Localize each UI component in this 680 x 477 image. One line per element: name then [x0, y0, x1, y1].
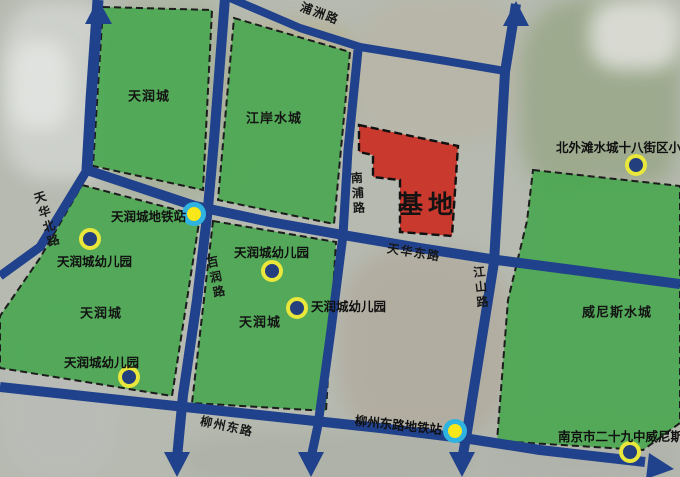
tianrun-kindergarten-mid-n-marker: [261, 260, 283, 282]
region-tianrun-north-label: 天润城: [128, 86, 170, 105]
region-tianrun-west-label: 天润城: [80, 303, 122, 322]
marker-tianrun-kindergarten-mid-n-label: 天润城幼儿园: [234, 242, 309, 261]
marker-tianrun-kindergarten-nw-label: 天润城幼儿园: [57, 251, 132, 270]
liuzhou-east-metro-station-marker: [443, 419, 467, 443]
marker-beiwaitan-18th-block-school-label: 北外滩水城十八街区小: [556, 137, 680, 156]
region-venice-shuicheng-label: 威尼斯水城: [582, 302, 652, 321]
region-jiangan-shuicheng-label: 江岸水城: [246, 108, 302, 127]
marker-tianrun-metro-station-label: 天润城地铁站: [111, 206, 186, 225]
marker-liuzhou-east-metro-station-label: 柳州东路地铁站: [354, 410, 443, 438]
marker-tianrun-kindergarten-mid-s-label: 天润城幼儿园: [311, 296, 386, 315]
road-liuzhou-east-road-label: 柳州东路: [199, 412, 255, 440]
tianrun-kindergarten-mid-s-marker: [286, 297, 308, 319]
beiwaitan-18th-block-school-marker: [625, 154, 647, 176]
road-nanpu-road-label: 南浦路: [348, 171, 368, 217]
tianrun-kindergarten-nw-marker: [79, 228, 101, 250]
road-tianhua-east-road-label: 天华东路: [386, 239, 442, 264]
planning-map: 基地 浦洲路天华北路南浦路百润路天华东路江山路柳州东路天润城江岸水城天润城天润城…: [0, 0, 680, 477]
labels-layer: 基地 浦洲路天华北路南浦路百润路天华东路江山路柳州东路天润城江岸水城天润城天润城…: [0, 0, 680, 477]
marker-tianrun-kindergarten-sw-label: 天润城幼儿园: [64, 352, 139, 371]
marker-nanjing-no29-venice-school-label: 南京市二十九中威尼斯水: [558, 426, 680, 445]
site-label: 基地: [398, 185, 458, 221]
road-jiangshan-road-label: 江山路: [470, 265, 492, 312]
region-tianrun-center-label: 天润城: [239, 312, 281, 331]
road-tianhua-north-road-label: 天华北路: [30, 189, 64, 251]
road-bairun-road-label: 百润路: [203, 254, 229, 302]
road-puzhou-road-label: 浦洲路: [298, 0, 342, 28]
